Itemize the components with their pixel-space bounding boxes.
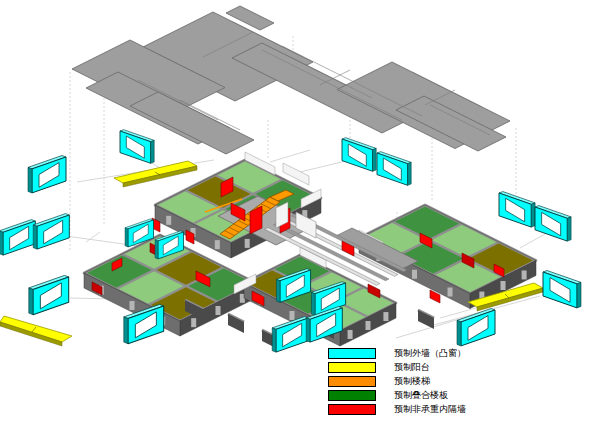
legend-label-precast-composite-floor-slab: 预制叠合楼板 [394,390,448,401]
legend-row-precast-composite-floor-slab: 预制叠合楼板 [328,390,466,401]
legend-row-precast-exterior-wall-bay-window: 预制外墙（凸窗） [328,348,466,359]
window-panel [342,138,376,172]
legend-swatch-precast-stair [328,376,376,387]
window-panel [377,152,411,186]
exploded-top-slab-layer [72,6,510,154]
legend-label-precast-nonbearing-partition: 预制非承重内隔墙 [394,404,466,415]
legend-swatch-precast-nonbearing-partition [328,404,376,415]
legend-label-precast-stair: 预制楼梯 [394,376,430,387]
window-panel [28,156,66,193]
window-panel [499,192,535,228]
window-panel [543,271,581,308]
exploded-building-diagram-page: 预制外墙（凸窗）预制阳台预制楼梯预制叠合楼板预制非承重内隔墙 [0,0,600,425]
legend-row-precast-nonbearing-partition: 预制非承重内隔墙 [328,404,466,415]
legend: 预制外墙（凸窗）预制阳台预制楼梯预制叠合楼板预制非承重内隔墙 [328,348,466,415]
window-panel [120,130,154,164]
window-panel [272,317,308,353]
exploded-axonometric-diagram [0,0,600,425]
legend-swatch-precast-balcony [328,362,376,373]
legend-swatch-precast-composite-floor-slab [328,390,376,401]
window-panel [457,309,495,346]
legend-label-precast-balcony: 预制阳台 [394,362,430,373]
window-panel [29,275,69,314]
window-panel [33,214,69,250]
legend-row-precast-stair: 预制楼梯 [328,376,466,387]
legend-row-precast-balcony: 预制阳台 [328,362,466,373]
legend-label-precast-exterior-wall-bay-window: 预制外墙（凸窗） [394,348,466,359]
window-panel [0,220,35,256]
window-panel [535,206,571,242]
legend-swatch-precast-exterior-wall-bay-window [328,348,376,359]
